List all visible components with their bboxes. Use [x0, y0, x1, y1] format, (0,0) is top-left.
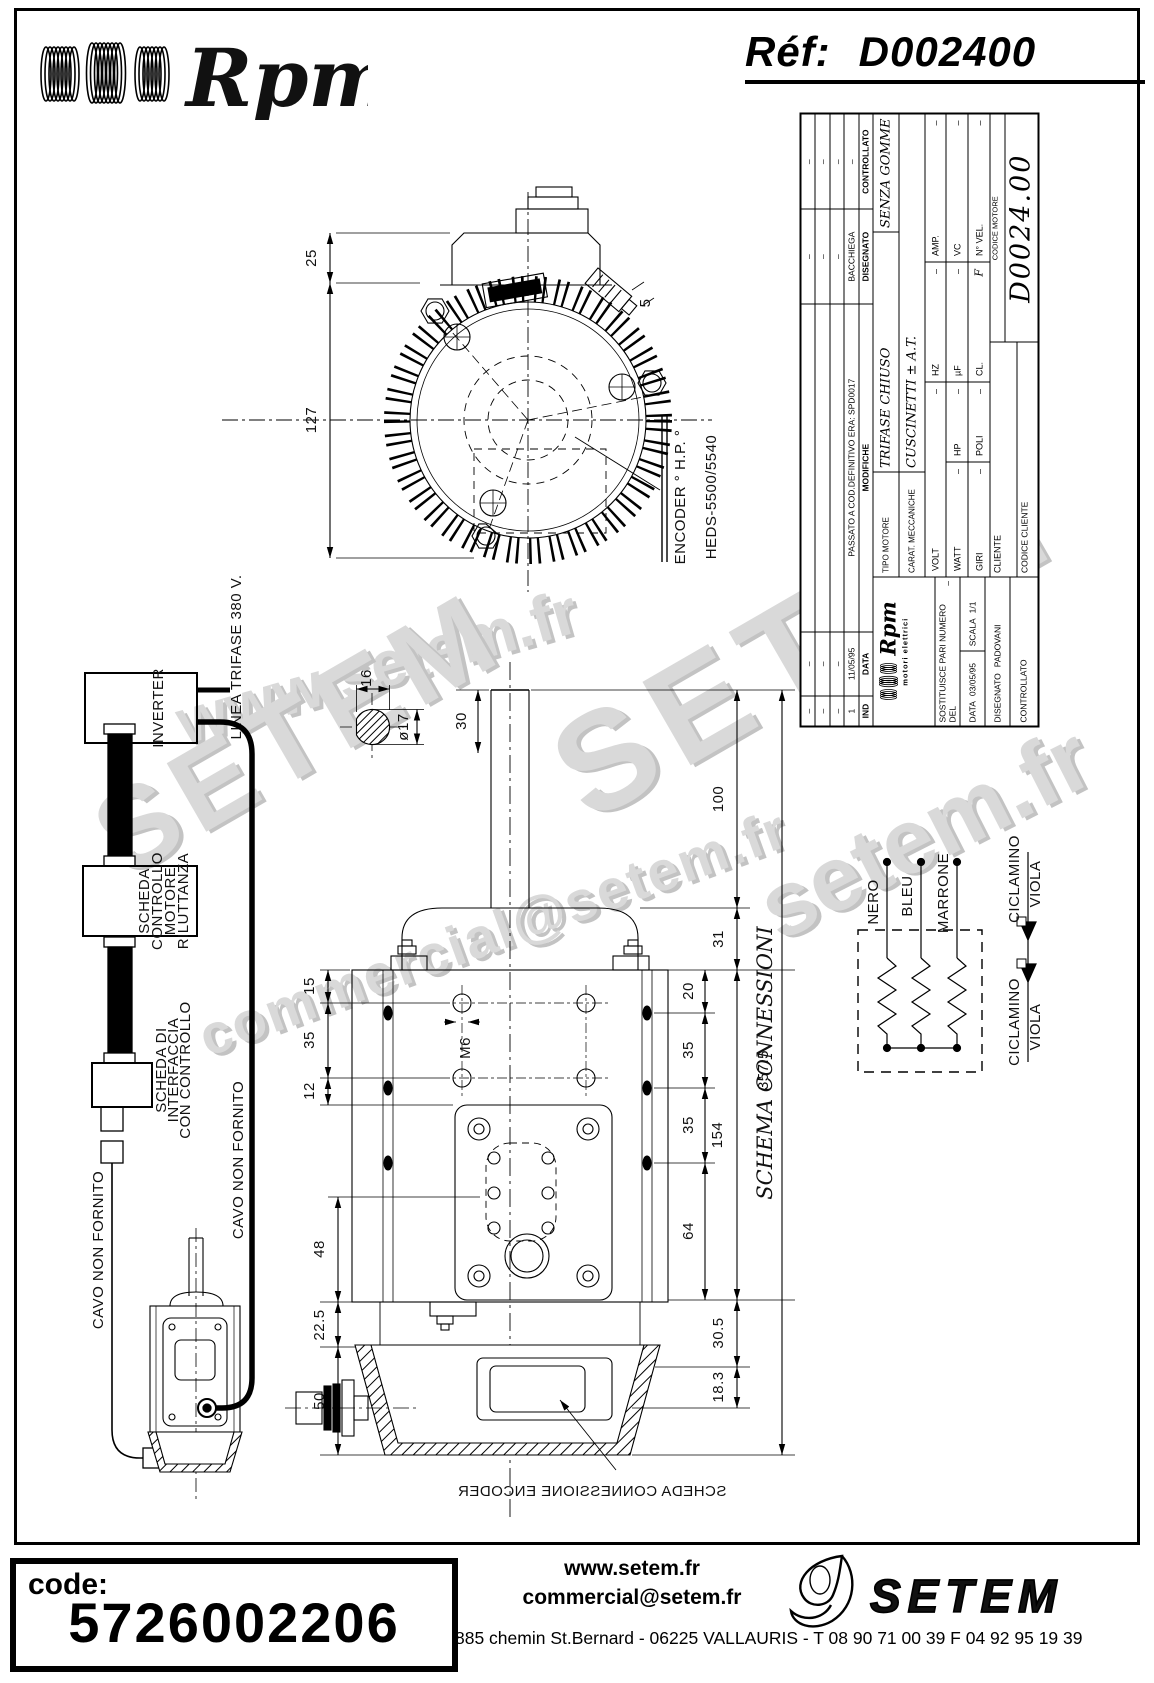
amp-label: AMP.	[930, 235, 940, 256]
giri-value: –	[974, 469, 984, 474]
wire-labels: NERO BLEU MARRONE	[865, 853, 952, 933]
codice-motore-value: D0024.00	[1006, 115, 1038, 342]
hz-value: –	[930, 269, 940, 274]
tipo-motore-row: TIPO MOTORE TRIFASE CHIUSO SENZA GOMME	[874, 115, 900, 577]
connector-plug	[101, 1141, 123, 1163]
schema-title: SCHEMA CONNESSIONI	[753, 926, 777, 1200]
rev-ind: –	[830, 696, 843, 726]
rev-dis: –	[830, 209, 843, 303]
disegnato-label: DISEGNATO	[993, 673, 1003, 722]
dim-50: 50	[311, 1392, 328, 1410]
wire-bleu-label: BLEU	[899, 875, 916, 916]
dim-15: 15	[301, 977, 318, 995]
hp-label: HP	[952, 443, 962, 456]
sostituisce-row: SOSTITUISCE PARI NUMERO DEL –	[936, 578, 961, 726]
disegnato-row: DISEGNATO PADOVANI	[986, 578, 1011, 726]
rev-mod	[816, 303, 829, 631]
rpm-header-logo: Rpm	[28, 18, 368, 120]
linea-trifase-label: LINEA TRIFASE 380 V.	[228, 574, 245, 739]
revision-header-row: IND DATA MODIFICHE DISEGNATO CONTROLLATO	[859, 115, 872, 726]
dim-35b: 35	[680, 1041, 697, 1059]
small-motor	[148, 1228, 242, 1500]
rev-con: –	[830, 115, 843, 209]
rev-data: 11/05/95	[845, 631, 858, 696]
revision-row: – – – –	[816, 115, 830, 726]
title-block-right: TIPO MOTORE TRIFASE CHIUSO SENZA GOMME C…	[874, 115, 1038, 577]
uf-value: –	[952, 269, 962, 274]
rev-col-controllato: CONTROLLATO	[859, 115, 872, 209]
scala-label: SCALA	[968, 618, 978, 646]
bell-housing	[355, 1345, 660, 1455]
rev-con: –	[845, 115, 858, 209]
encoder-connector	[585, 268, 639, 318]
rev-mod: PASSATO A COD.DEFINITIVO ERA: SPD0017	[845, 303, 858, 631]
pair-labels: CICLAMINO VIOLA CICLAMINO VIOLA	[1006, 835, 1044, 1066]
inverter-label: INVERTER	[150, 668, 167, 748]
schema-connessioni: SCHEMA CONNESSIONI NERO BLEU MARRONE CIC…	[753, 835, 1044, 1200]
volt-label: VOLT	[930, 548, 940, 571]
cliente-codice-block: CLIENTE CODICE CLIENTE CODICE MOTORE D00…	[991, 115, 1038, 577]
poli-value: –	[974, 389, 984, 394]
nvel-value: –	[974, 121, 984, 126]
giri-label: GIRI	[974, 552, 984, 571]
rev-ind: –	[816, 696, 829, 726]
disegnato-value: PADOVANI	[993, 625, 1003, 668]
nvel-label: N° VEL.	[974, 224, 984, 256]
dim-25: 25	[303, 249, 320, 267]
encoder-model-label: HEDS-5500/5540	[703, 435, 720, 560]
revision-table: – – – – – – – – – – – – 1 11/05/95 PASSA…	[802, 115, 874, 726]
dim-48: 48	[311, 1240, 328, 1258]
carat-label: CARAT. MECCANICHE	[899, 472, 924, 577]
codice-motore-label: CODICE MOTORE	[991, 115, 1006, 342]
vc-label: VC	[952, 243, 962, 256]
data-label: DATA	[968, 701, 978, 722]
rev-con: –	[802, 115, 815, 209]
controllato-label: CONTROLLATO	[1018, 660, 1028, 723]
front-view: 25 127 5 ENCODER ° H.P. ° HEDS-5500/5540	[222, 187, 720, 592]
wire-nero-label: NERO	[865, 879, 882, 924]
electrical-row-1: VOLT– HZ– AMP.–	[925, 115, 947, 577]
code-box: code: 5726002206	[10, 1558, 458, 1672]
sostituisce-value: –	[943, 581, 953, 586]
dim-31: 31	[710, 930, 727, 948]
revision-row-1: 1 11/05/95 PASSATO A COD.DEFINITIVO ERA:…	[845, 115, 859, 726]
pair-bottom-viola: VIOLA	[1027, 1004, 1044, 1051]
control-label-4: RILUTTANZA	[175, 853, 192, 949]
scanned-technical-drawing: { "header": { "brand": "Rpm", "ref_label…	[0, 0, 1154, 1683]
encoder-board	[477, 1358, 612, 1420]
electrical-row-3: GIRI– POLI– CL.F N° VEL.–	[969, 115, 991, 577]
scala-value: 1/1	[968, 602, 978, 614]
dim-154: 154	[709, 1122, 726, 1149]
controllato-row: CONTROLLATO	[1011, 578, 1036, 726]
sostituisce-label: SOSTITUISCE PARI NUMERO DEL	[938, 592, 958, 723]
dim-30: 30	[453, 712, 470, 730]
cavo-left-label: CAVO NON FORNITO	[90, 1171, 107, 1329]
top-flange	[391, 908, 649, 970]
connection-plate	[455, 1105, 612, 1300]
side-view-dim-texts: 30 15 35 12 48 22.5 50 20 35 35 64 100 3…	[301, 712, 772, 1410]
thick-cable	[197, 722, 252, 1408]
setem-swoosh-icon	[791, 1556, 852, 1626]
interface-board-box	[92, 1063, 152, 1107]
dim-dia17: ø17	[395, 713, 412, 740]
pair-top-viola: VIOLA	[1027, 861, 1044, 908]
poli-label: POLI	[974, 435, 984, 456]
dim-127: 127	[303, 407, 320, 434]
amp-value: –	[930, 121, 940, 126]
interface-label-3: CON CONTROLLO	[177, 1001, 194, 1138]
rev-ind: 1	[845, 696, 858, 726]
rpm-coils-icon-small	[877, 658, 899, 702]
dim-16: 16	[358, 669, 375, 687]
encoder-board-label-mirrored: SCHEDA CONNESSIONE ENCODER	[458, 1483, 727, 1500]
vc-value: –	[952, 121, 962, 126]
shaft-section-detail: 16 ø17	[340, 669, 424, 762]
dim-20: 20	[680, 982, 697, 1000]
side-view: M6 SCHEDA CONNESSIONE ENCODER	[285, 662, 795, 1520]
encoder-label: ENCODER ° H.P. °	[672, 430, 689, 565]
connector-stub	[101, 1107, 123, 1131]
rpm-coils-icon	[41, 43, 169, 103]
rev-mod	[830, 303, 843, 631]
hz-label: HZ	[930, 364, 940, 376]
senza-gomme-value: SENZA GOMME	[874, 115, 899, 232]
revision-row: – – – –	[830, 115, 844, 726]
rev-data: –	[802, 631, 815, 696]
dim-30-5: 30.5	[710, 1317, 727, 1348]
codice-cliente-label: CODICE CLIENTE	[1018, 343, 1038, 577]
cavo-right-label: CAVO NON FORNITO	[230, 1081, 247, 1239]
dim-35c: 35	[680, 1116, 697, 1134]
cl-label: CL.	[974, 362, 984, 376]
code-value: 5726002206	[16, 1590, 452, 1655]
rev-col-modifiche: MODIFICHE	[859, 303, 872, 631]
m6-label: M6	[457, 1037, 474, 1059]
footer-contact: www.setem.fr commercial@setem.fr	[452, 1554, 812, 1612]
dim-18-3: 18.3	[710, 1371, 727, 1402]
block-diagram: INVERTER LINEA TRIFASE 380 V. SCHEDA CON…	[83, 574, 252, 1500]
setem-logo-text: SETEM	[870, 1570, 1063, 1622]
carat-value: CUSCINETTI ± A.T.	[899, 115, 924, 472]
interface-board-label: SCHEDA DI INTERFACCIA CON CONTROLLO	[153, 1001, 194, 1138]
rev-mod	[802, 303, 815, 631]
rev-dis: –	[802, 209, 815, 303]
rev-dis: BACCHIEGA	[845, 209, 858, 303]
footer-website: www.setem.fr	[452, 1554, 812, 1583]
tipo-motore-value: TRIFASE CHIUSO	[874, 232, 899, 472]
footer-email: commercial@setem.fr	[452, 1583, 812, 1612]
rev-col-ind: IND	[859, 696, 872, 726]
dim-35a: 35	[301, 1031, 318, 1049]
tb-rpm-text: Rpm	[876, 601, 901, 655]
dim-64: 64	[680, 1222, 697, 1240]
data-scala-row: DATA03/05/95 SCALA1/1	[961, 578, 986, 726]
tipo-motore-label: TIPO MOTORE	[874, 472, 899, 577]
cliente-label: CLIENTE	[991, 343, 1018, 577]
pair-top-ciclamino: CICLAMINO	[1006, 835, 1023, 923]
electrical-row-2: WATT– HP– µF– VC–	[947, 115, 969, 577]
watt-label: WATT	[952, 546, 962, 571]
inverter-box	[85, 673, 197, 743]
revision-row: – – – –	[802, 115, 816, 726]
rev-data: –	[816, 631, 829, 696]
wire-marrone-label: MARRONE	[935, 853, 952, 933]
rev-ind: –	[802, 696, 815, 726]
rpm-logo-text: Rpm	[184, 31, 368, 120]
rev-con: –	[816, 115, 829, 209]
dim-5: 5	[637, 299, 654, 308]
thin-cable	[112, 1163, 143, 1458]
cable-2	[104, 937, 135, 1063]
watt-value: –	[952, 469, 962, 474]
volt-value: –	[930, 389, 940, 394]
rev-col-disegnato: DISEGNATO	[859, 209, 872, 303]
rev-dis: –	[816, 209, 829, 303]
data-value: 03/05/95	[968, 663, 978, 696]
dim-12: 12	[301, 1082, 318, 1100]
title-block-left: Rpm motori elettrici SOSTITUISCE PARI NU…	[874, 577, 1038, 726]
title-block-logo: Rpm motori elettrici	[874, 578, 936, 726]
uf-label: µF	[952, 365, 962, 376]
dim-100: 100	[710, 786, 727, 813]
rev-data: –	[830, 631, 843, 696]
hp-value: –	[952, 389, 962, 394]
windings	[878, 859, 966, 1052]
carat-row: CARAT. MECCANICHE CUSCINETTI ± A.T.	[899, 115, 925, 577]
cable-1	[104, 724, 135, 866]
title-block: – – – – – – – – – – – – 1 11/05/95 PASSA…	[800, 113, 1040, 728]
pair-bottom-ciclamino: CICLAMINO	[1006, 978, 1023, 1066]
rev-col-data: DATA	[859, 631, 872, 696]
cl-value: F	[973, 269, 986, 277]
shaft-section	[357, 710, 390, 745]
terminal-box	[440, 187, 612, 285]
dim-22-5: 22.5	[311, 1309, 328, 1340]
setem-logo: SETEM	[780, 1548, 1154, 1640]
tb-rpm-sub: motori elettrici	[901, 578, 910, 726]
